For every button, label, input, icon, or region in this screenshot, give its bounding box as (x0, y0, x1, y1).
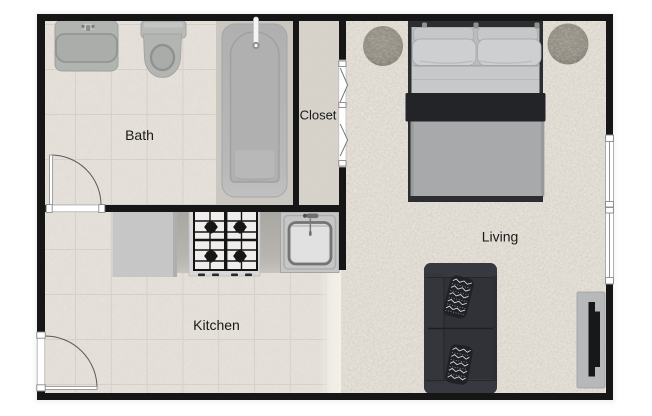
svg-text:Bath: Bath (125, 127, 154, 143)
svg-text:Kitchen: Kitchen (193, 317, 240, 333)
svg-text:Closet: Closet (300, 108, 337, 123)
svg-text:Living: Living (482, 229, 519, 245)
